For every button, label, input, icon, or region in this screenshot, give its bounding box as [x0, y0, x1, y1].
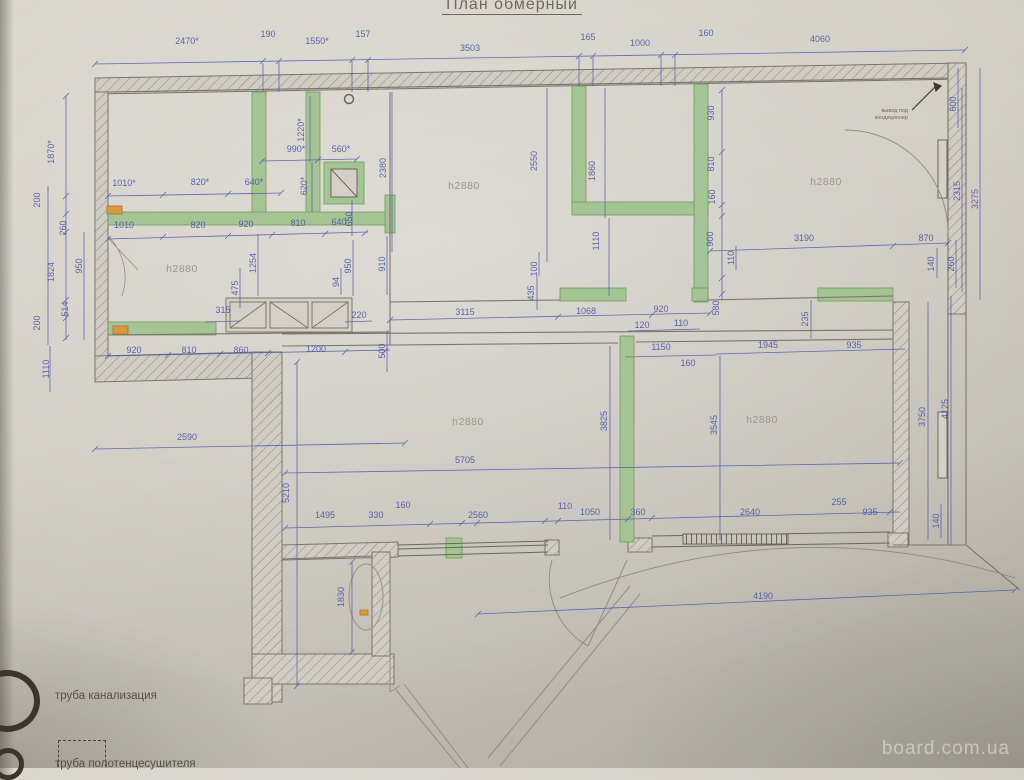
dimension-label: 4125: [940, 399, 950, 419]
dimension-label: 650: [344, 211, 354, 226]
dimension-label: 860: [233, 345, 248, 355]
dimension-label: 140: [931, 513, 941, 528]
dimension-label: 120: [634, 320, 649, 330]
dimension-label: 157: [355, 29, 370, 39]
dimension-label: 3825: [599, 411, 609, 431]
dimension-label: 435: [526, 285, 536, 300]
annotation-text: кондиционер: [875, 115, 908, 121]
room-height-label: h2880: [166, 263, 198, 275]
dimension-label: 920: [653, 304, 668, 314]
dimension-label: 260: [946, 256, 956, 271]
dimension-label: 3545: [709, 415, 719, 435]
dimension-label: 930: [706, 105, 716, 120]
dimension-label: 3190: [794, 233, 814, 243]
legend-towel-dryer-label: труба полотенцесушителя: [55, 758, 196, 770]
radiator-marker: [113, 326, 128, 334]
annotation-text-layer: вывод подкондиционер: [875, 108, 909, 121]
dimension-label: 5705: [455, 455, 475, 465]
legend-sewer-pipe-label: труба канализация: [55, 690, 157, 702]
wardrobe: [226, 298, 352, 332]
floor-plan-drawing: 2470*1901550*1573503165100016040601870*2…: [0, 0, 1024, 768]
dimension-label: 990*: [287, 144, 306, 154]
pipe-circle-symbol: [345, 95, 354, 104]
dimension-label: 935: [846, 340, 861, 350]
dimension-label: 1010: [114, 220, 134, 230]
room-height-label: h2880: [452, 416, 484, 428]
dimension-label: 1860: [587, 161, 597, 181]
dimension-label: 1150: [651, 342, 670, 352]
dimension-label: 1010*: [112, 178, 136, 188]
dimension-label: 1870*: [46, 140, 56, 164]
dimension-label: 514: [60, 301, 70, 316]
dimension-label: 920: [238, 219, 253, 229]
dimension-label: 315: [215, 305, 230, 315]
dimension-label: 3115: [455, 307, 474, 317]
dimension-label: 2315: [952, 181, 962, 201]
dimension-label: 1830: [336, 587, 346, 607]
drawing-title: План обмерный: [0, 0, 1024, 14]
dimension-label: 200: [32, 192, 42, 207]
dimension-label: 620*: [299, 176, 309, 195]
dimension-label: 3275: [970, 189, 980, 209]
dimension-label: 1000: [630, 38, 650, 48]
dimension-label: 1945: [758, 340, 778, 350]
dimension-label: 1200: [306, 344, 326, 354]
annotation-text: вывод под: [881, 108, 908, 114]
dimension-label: 160: [395, 500, 410, 510]
dimension-label: 500: [377, 343, 387, 358]
dimension-label: 560*: [332, 144, 351, 154]
dimension-label: 220: [351, 310, 366, 320]
dimension-label: 260: [58, 220, 68, 235]
dimension-label: 600: [948, 96, 958, 111]
dimension-label: 140: [926, 256, 936, 271]
dimension-label: 820: [190, 220, 205, 230]
dimension-label: 1824: [46, 262, 56, 282]
dimension-label: 1550*: [305, 36, 329, 46]
dimension-label: 810: [181, 345, 196, 355]
dimension-label: 475: [230, 280, 240, 295]
dimension-label: 1068: [576, 306, 596, 316]
dimension-label: 94: [331, 277, 341, 287]
radiator-marker: [360, 610, 368, 615]
dimension-label: 200: [32, 315, 42, 330]
dimension-label: 255: [831, 497, 846, 507]
dimension-label: 160: [680, 358, 695, 368]
dimension-label: 360: [630, 507, 645, 517]
dimension-label: 165: [580, 32, 595, 42]
watermark: board.com.ua: [882, 738, 1010, 760]
dimension-label: 5210: [281, 483, 291, 503]
dimension-label: 4060: [810, 34, 830, 44]
dimension-label: 3750: [917, 407, 927, 427]
dimension-label: 810: [706, 156, 716, 171]
dimension-label: 2380: [378, 158, 388, 178]
dimension-label: 2550: [529, 151, 539, 171]
dimension-label: 2590: [177, 432, 197, 442]
dimension-label: 190: [260, 29, 275, 39]
dimension-label: 2470*: [175, 36, 199, 46]
dimension-label: 950: [74, 258, 84, 273]
dimension-label: 900: [705, 231, 715, 246]
dimension-label: 1220*: [296, 118, 306, 142]
dimension-label: 110: [726, 251, 736, 265]
dimension-label: 1254: [248, 253, 258, 273]
dimension-label: 2560: [468, 510, 488, 520]
room-height-label: h2880: [810, 176, 842, 188]
dimension-label: 4190: [753, 591, 773, 601]
photographed-drawing-sheet: План обмерный: [0, 0, 1024, 768]
dimension-label: 160: [707, 189, 717, 204]
dimension-label: 1495: [315, 510, 335, 520]
dimension-label: 3503: [460, 43, 480, 53]
dimension-label: 330: [368, 510, 383, 520]
dimension-label: 820*: [191, 177, 210, 187]
room-height-label: h2880: [746, 414, 778, 426]
dimension-label: 870: [918, 233, 933, 243]
dimension-label: 935: [862, 507, 877, 517]
radiator-marker: [107, 206, 122, 214]
vent-shaft: [331, 169, 357, 197]
annotation-arrow: [912, 83, 941, 110]
dimension-label: 920: [126, 345, 141, 355]
dimension-label: 110: [558, 501, 572, 511]
dimension-label: 110: [674, 318, 688, 328]
dimension-label: 1110: [41, 360, 51, 379]
dimension-label: 1110: [591, 232, 601, 251]
dimension-label: 2640: [740, 507, 760, 517]
dimension-label: 910: [377, 256, 387, 271]
room-height-label: h2880: [448, 180, 480, 192]
dimension-label: 100: [529, 261, 539, 276]
dimension-label: 580: [711, 300, 721, 315]
dimension-label: 950: [343, 258, 353, 273]
dimension-label: 1050: [580, 507, 600, 517]
dimension-label: 160: [698, 28, 713, 38]
dimension-label: 235: [800, 311, 810, 326]
dimension-label: 810: [290, 218, 305, 228]
dimension-label: 640*: [245, 177, 264, 187]
